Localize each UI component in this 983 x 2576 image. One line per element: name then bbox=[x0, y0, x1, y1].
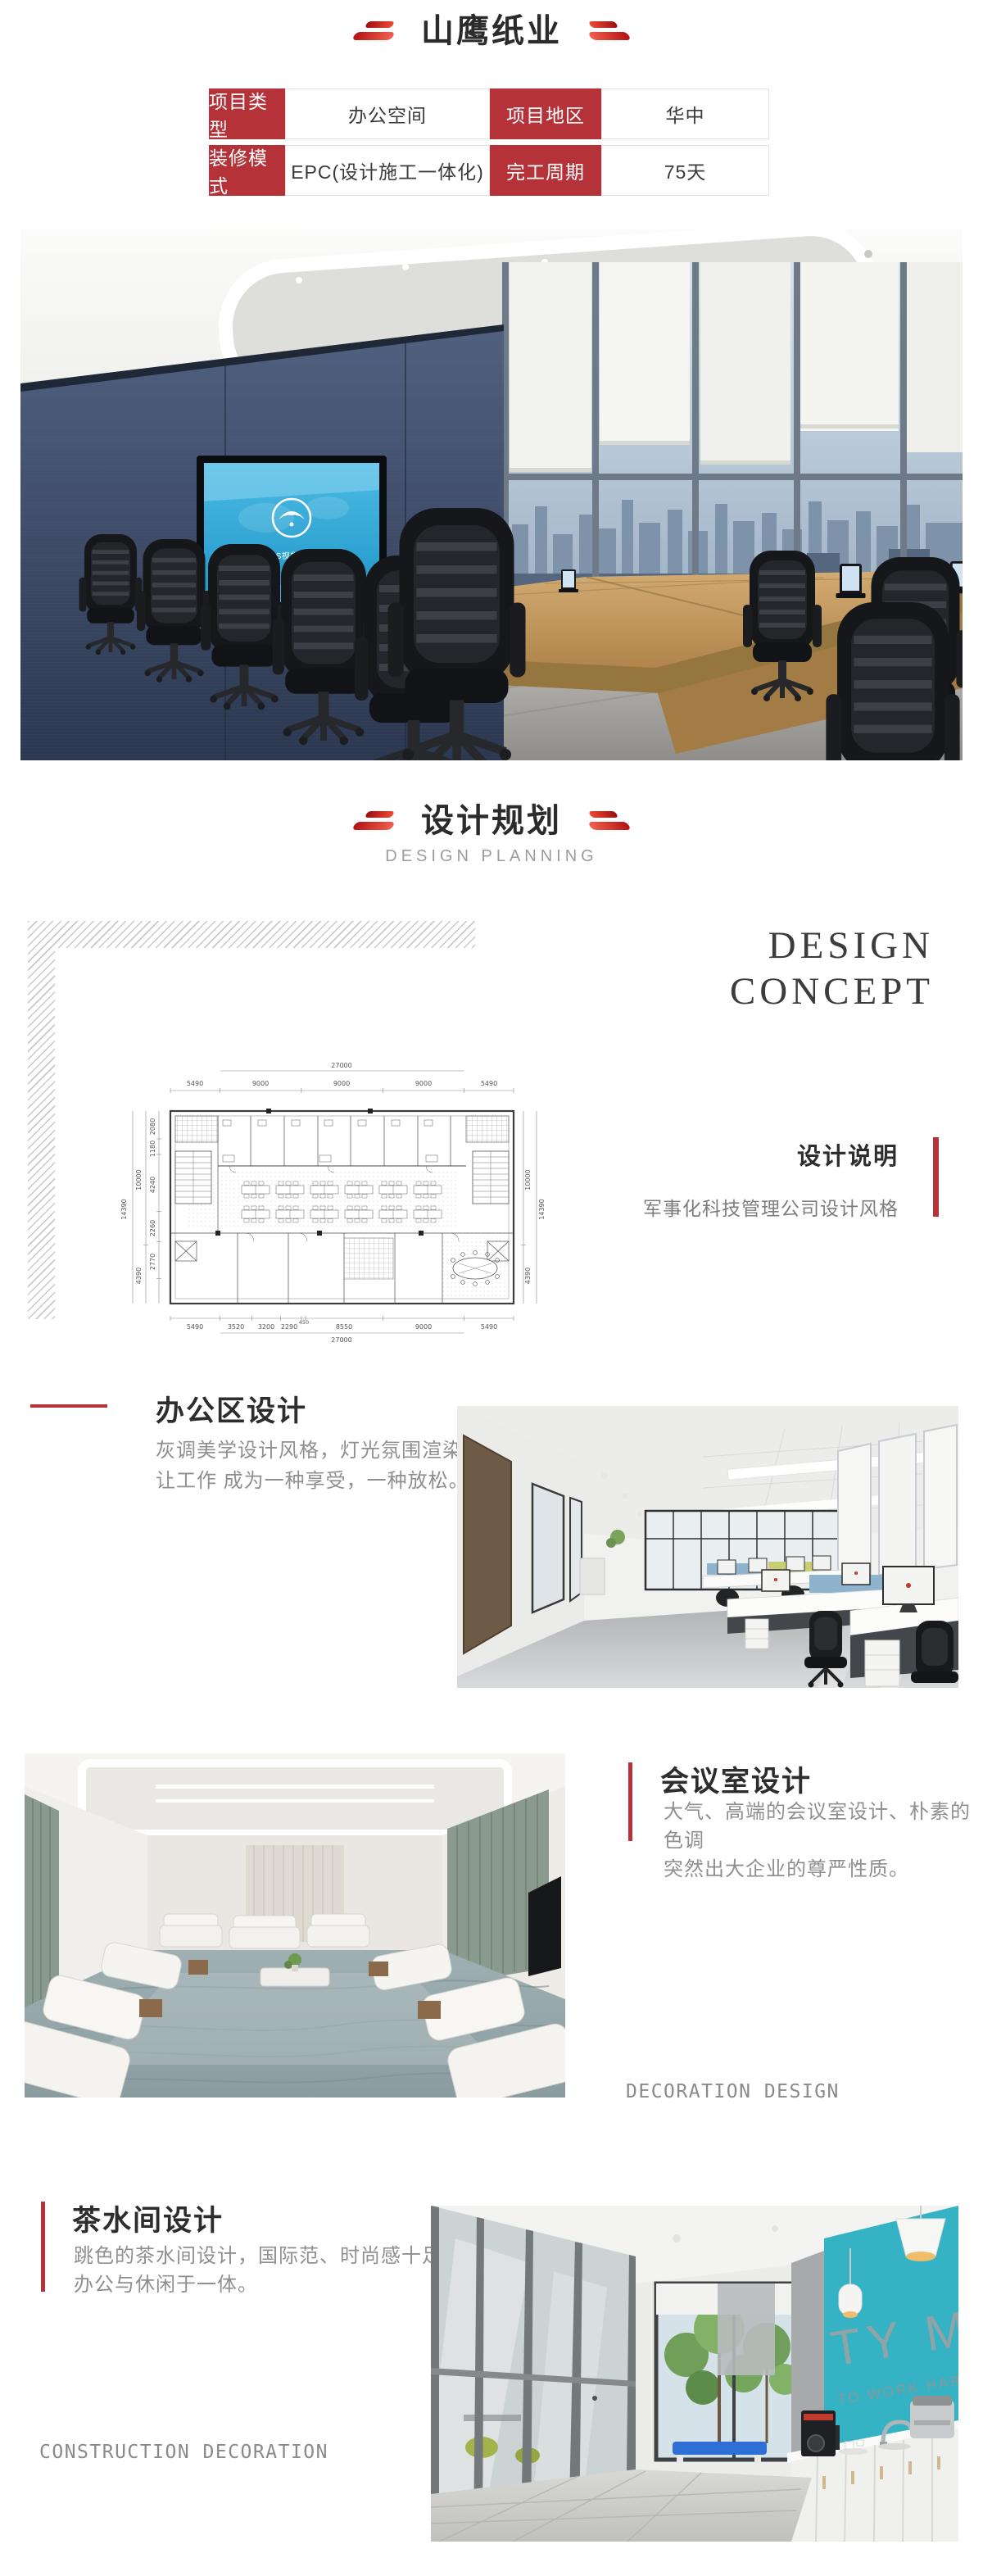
project-type-label: 项目类型 bbox=[209, 88, 285, 139]
office-area-title: 办公区设计 bbox=[156, 1388, 307, 1430]
svg-text:4390: 4390 bbox=[135, 1268, 143, 1284]
svg-text:3520: 3520 bbox=[228, 1323, 244, 1331]
svg-text:9000: 9000 bbox=[252, 1080, 269, 1087]
page-title: 山鹰纸业 bbox=[421, 13, 562, 49]
svg-text:27000: 27000 bbox=[331, 1336, 351, 1344]
svg-text:4240: 4240 bbox=[149, 1177, 156, 1193]
meeting-room-title: 会议室设计 bbox=[660, 1758, 812, 1800]
project-info-table: 项目类型 办公空间 项目地区 华中 装修模式 EPC(设计施工一体化) 完工周期… bbox=[209, 88, 769, 202]
office-area-description: 灰调美学设计风格，灯光氛围渲染， 让工作 成为一种享受，一种放松。 bbox=[156, 1435, 483, 1496]
svg-text:5490: 5490 bbox=[187, 1323, 203, 1331]
design-note-description: 军事化科技管理公司设计风格 bbox=[643, 1193, 899, 1221]
door-handle bbox=[592, 2396, 597, 2401]
svg-text:2260: 2260 bbox=[149, 1220, 156, 1236]
svg-text:9000: 9000 bbox=[415, 1080, 432, 1087]
project-region-label: 项目地区 bbox=[490, 88, 601, 139]
meeting-room-photo bbox=[25, 1753, 565, 2098]
svg-text:5490: 5490 bbox=[481, 1080, 497, 1087]
hatch-border-left bbox=[28, 921, 55, 1319]
red-accent-bar bbox=[933, 1137, 939, 1217]
project-region-value: 华中 bbox=[601, 88, 769, 139]
core-top-right bbox=[466, 1116, 509, 1142]
svg-text:1180: 1180 bbox=[149, 1141, 156, 1157]
completion-period-value: 75天 bbox=[601, 145, 769, 196]
blue-bench bbox=[673, 2442, 767, 2455]
tea-room-title: 茶水间设计 bbox=[72, 2197, 224, 2239]
hero-conference-room-photo: 山鹰纸业VIS视觉形象识别系统 bbox=[20, 229, 963, 760]
design-planning-header: 设计规划 DESIGN PLANNING bbox=[0, 803, 983, 866]
core-top-left bbox=[175, 1116, 218, 1142]
svg-text:14390: 14390 bbox=[120, 1199, 128, 1219]
svg-text:8550: 8550 bbox=[336, 1323, 352, 1331]
red-dash-icon bbox=[354, 19, 400, 43]
framed-window bbox=[532, 1484, 564, 1612]
wood-door bbox=[464, 1435, 511, 1653]
table-row: 项目类型 办公空间 项目地区 华中 bbox=[209, 88, 769, 139]
red-accent-bar bbox=[41, 2202, 45, 2292]
right-windows bbox=[838, 1425, 957, 1580]
svg-text:3200: 3200 bbox=[258, 1323, 274, 1331]
ceiling-recess bbox=[82, 1763, 508, 1834]
svg-text:27000: 27000 bbox=[331, 1062, 351, 1069]
decoration-design-watermark: DECORATION DESIGN bbox=[626, 2081, 840, 2102]
downlight bbox=[772, 2225, 778, 2232]
black-chair bbox=[911, 1621, 958, 1683]
pantry bbox=[344, 1238, 393, 1279]
svg-text:2770: 2770 bbox=[149, 1254, 156, 1270]
page-header: 山鹰纸业 bbox=[0, 13, 983, 49]
svg-text:2290: 2290 bbox=[281, 1323, 297, 1331]
red-dash-icon bbox=[583, 19, 629, 43]
svg-text:10000: 10000 bbox=[524, 1169, 532, 1190]
printer bbox=[580, 1558, 605, 1594]
completion-period-label: 完工周期 bbox=[490, 145, 601, 196]
design-concept-heading: DESIGN CONCEPT bbox=[730, 923, 934, 1015]
red-accent-bar bbox=[628, 1762, 632, 1841]
project-type-value: 办公空间 bbox=[285, 88, 490, 139]
svg-text:9000: 9000 bbox=[333, 1080, 350, 1087]
section-subtitle: DESIGN PLANNING bbox=[385, 847, 597, 866]
table-row: 装修模式 EPC(设计施工一体化) 完工周期 75天 bbox=[209, 145, 769, 196]
downlight bbox=[673, 2234, 681, 2243]
svg-text:5490: 5490 bbox=[481, 1323, 497, 1331]
case-study-page: 山鹰纸业 项目类型 办公空间 项目地区 华中 装修模式 EPC(设计施工一体化)… bbox=[0, 0, 983, 2576]
decoration-mode-label: 装修模式 bbox=[209, 145, 285, 196]
svg-text:10000: 10000 bbox=[135, 1169, 143, 1190]
coffee-machine bbox=[801, 2410, 840, 2456]
svg-text:450: 450 bbox=[299, 1319, 309, 1326]
stairs-right bbox=[473, 1151, 509, 1204]
office-area-photo bbox=[457, 1406, 958, 1688]
wall-tv bbox=[528, 1876, 561, 1976]
svg-text:14390: 14390 bbox=[538, 1199, 546, 1219]
section-title: 设计规划 bbox=[421, 803, 562, 839]
open-office-floor bbox=[188, 1172, 459, 1229]
tea-room-photo: TY ME TO WORK HARD bbox=[431, 2206, 958, 2542]
design-note: 设计说明 军事化科技管理公司设计风格 bbox=[643, 1137, 939, 1221]
tea-room-description: 跳色的茶水间设计，国际范、时尚感十足 办公与休闲于一体。 bbox=[74, 2242, 442, 2299]
svg-text:4390: 4390 bbox=[524, 1268, 532, 1284]
red-dash-icon bbox=[583, 809, 629, 833]
red-accent-line bbox=[30, 1404, 107, 1408]
floor-plan-drawing: 27000 5490 9000 9000 9000 5490 5490 3520… bbox=[74, 1036, 565, 1344]
back-window bbox=[656, 2283, 812, 2463]
stairs-left bbox=[175, 1151, 211, 1204]
conference-room bbox=[442, 1238, 509, 1299]
decoration-mode-value: EPC(设计施工一体化) bbox=[285, 145, 490, 196]
svg-text:9000: 9000 bbox=[415, 1323, 432, 1331]
construction-decoration-watermark: CONSTRUCTION DECORATION bbox=[39, 2442, 328, 2463]
hatch-border-top bbox=[28, 921, 475, 948]
svg-text:5490: 5490 bbox=[187, 1080, 203, 1087]
red-dash-icon bbox=[354, 809, 400, 833]
meeting-room-description: 大气、高端的会议室设计、朴素的色调 突然出大企业的尊严性质。 bbox=[664, 1798, 983, 1884]
svg-text:2080: 2080 bbox=[149, 1118, 156, 1135]
design-note-title: 设计说明 bbox=[643, 1137, 899, 1172]
printer bbox=[910, 2396, 954, 2438]
elevator-left bbox=[175, 1241, 197, 1261]
